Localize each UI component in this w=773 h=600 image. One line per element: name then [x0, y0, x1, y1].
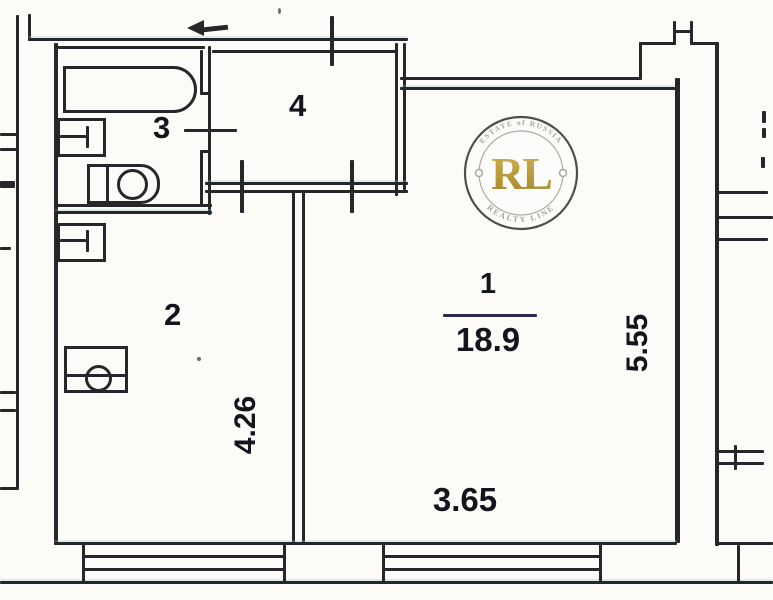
window-room1-jamb [599, 542, 602, 584]
wall-right-exterior [715, 42, 719, 546]
window-room1-pane [382, 568, 602, 571]
neighbor-window-line [718, 450, 764, 453]
watermark-logo: ESTATE of RUSSIA REALTY LINE RL [461, 113, 581, 233]
entrance-arrow-shaft [203, 25, 228, 33]
wall-top-left-corner [28, 14, 31, 41]
wall-segment [0, 391, 16, 394]
wall-bathroom-bottom-b [55, 211, 212, 214]
wall-bottom-right-vert [737, 545, 740, 584]
wall-top-exterior [28, 38, 408, 41]
toilet-tank-divider [106, 164, 109, 204]
watermark-dot-left [476, 170, 483, 177]
watermark-initials: RL [491, 148, 551, 199]
wall-segment [16, 15, 19, 490]
neighbor-window-tick [734, 445, 737, 470]
toilet-bowl [117, 169, 148, 200]
room3-number: 3 [153, 112, 170, 143]
wall-room1-top-b [400, 87, 678, 90]
wall-hallway-bottom-a [205, 182, 408, 185]
door-tick-room2 [240, 160, 244, 213]
vent-detail [60, 239, 88, 242]
wall-step [639, 42, 642, 80]
window-room2-jamb [82, 542, 85, 584]
vent-notch-left [673, 21, 676, 45]
dimension-room2-depth: 4.26 [231, 370, 261, 480]
neighbor-window-line [718, 462, 764, 465]
wall-segment [0, 133, 17, 136]
sink [57, 118, 106, 157]
scan-speck [197, 357, 201, 361]
wall-bottom-interior-right [716, 542, 773, 545]
watermark-dot-right [560, 170, 567, 177]
room1-area-divider [443, 314, 537, 317]
sink-detail [60, 135, 88, 138]
wall-bottom-exterior [0, 581, 773, 584]
entrance-arrow-icon [187, 20, 204, 36]
door-jamb [200, 92, 211, 95]
window-room2-pane [82, 568, 286, 571]
door-tick-entrance [330, 16, 334, 66]
wall-segment [0, 247, 11, 250]
vent-detail [86, 230, 89, 252]
wall-bathroom-bottom-a [55, 204, 212, 207]
wall-hallway-right-a [395, 43, 398, 196]
wall-dash [761, 157, 765, 168]
wall-stub [718, 216, 773, 219]
door-tick-bathroom [184, 129, 237, 132]
scan-speck [278, 8, 281, 14]
vent-notch-bar [673, 30, 693, 33]
wall-segment [0, 181, 15, 188]
bathtub [63, 66, 197, 113]
door-tick-room1 [350, 160, 354, 213]
wall-bathroom-right-lower [200, 152, 203, 206]
kitchen-sink-drain [85, 365, 112, 392]
wall-room1-top-a [400, 77, 641, 80]
room4-number: 4 [289, 90, 306, 121]
wall-hallway-top-inner [212, 50, 398, 53]
room1-area: 18.9 [436, 323, 540, 356]
wall-partition-b [302, 190, 305, 545]
wall-bathroom-top [55, 46, 205, 49]
wall-room1-right [675, 78, 680, 543]
wall-bathroom-right-upper [200, 50, 203, 93]
wall-segment [0, 487, 18, 490]
wall-bottom-interior [54, 542, 677, 545]
door-jamb [200, 150, 211, 153]
room1-number: 1 [436, 270, 540, 299]
wall-stub [718, 191, 768, 194]
wall-top-right-a [639, 42, 676, 45]
window-room1-pane [382, 555, 602, 558]
sink-detail [86, 126, 89, 148]
floor-plan: 3 4 2 1 18.9 5.55 4.26 3.65 ESTATE of RU… [0, 0, 773, 600]
dimension-room1-depth: 5.55 [623, 288, 653, 398]
wall-stub [718, 238, 768, 241]
window-room1-jamb [382, 542, 385, 584]
wall-partition-a [292, 190, 295, 545]
room2-number: 2 [164, 299, 181, 330]
wall-hallway-right-b [403, 43, 406, 190]
vent-shaft [57, 223, 106, 262]
window-room2-pane [82, 555, 286, 558]
wall-segment [0, 148, 17, 151]
dimension-room1-width: 3.65 [415, 483, 515, 516]
wall-segment [0, 409, 16, 412]
wall-dash [762, 128, 766, 138]
wall-dash [762, 111, 766, 123]
window-room2-jamb [283, 542, 286, 584]
wall-hallway-bottom-b [205, 190, 408, 193]
